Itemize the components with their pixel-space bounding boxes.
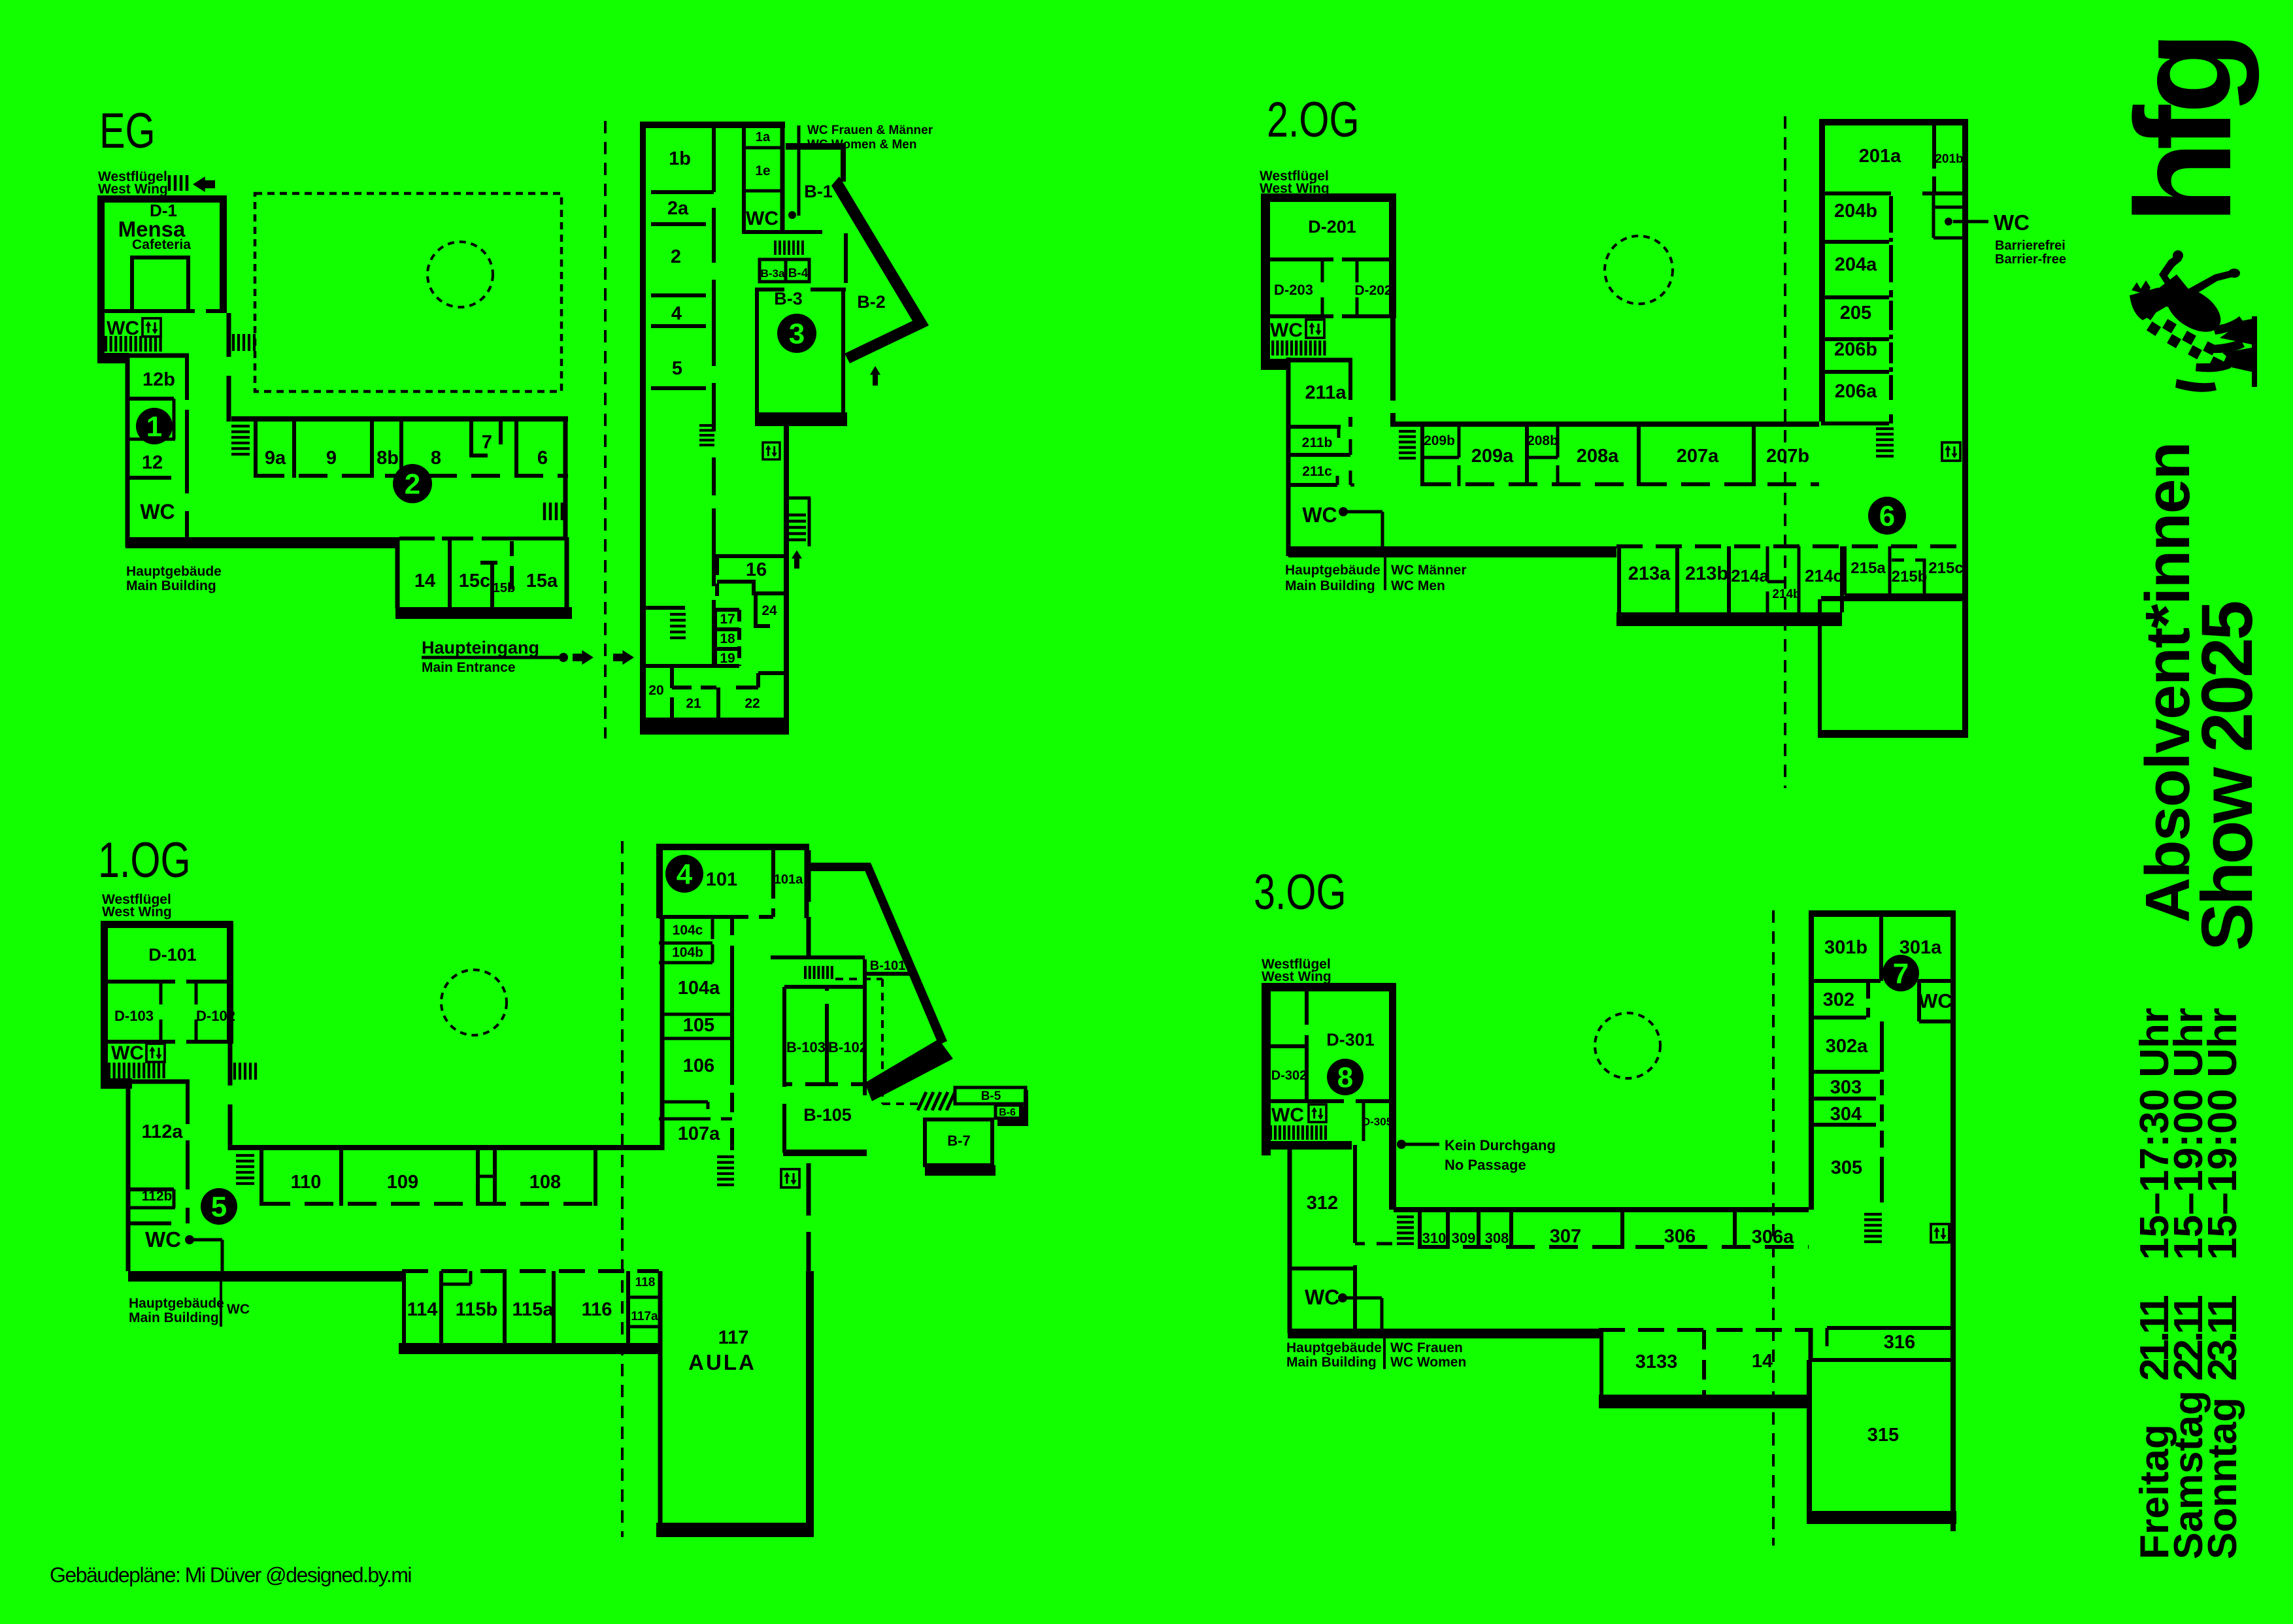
- svg-text:2: 2: [671, 246, 681, 267]
- svg-text:2.OG: 2.OG: [1267, 92, 1360, 148]
- svg-text:Haupteingang: Haupteingang: [422, 638, 539, 657]
- svg-text:308: 308: [1485, 1230, 1509, 1246]
- svg-text:209a: 209a: [1471, 446, 1514, 467]
- svg-text:2: 2: [405, 469, 420, 501]
- svg-text:WC: WC: [145, 1227, 181, 1251]
- svg-text:213b: 213b: [1685, 563, 1728, 584]
- svg-text:B-7: B-7: [947, 1133, 970, 1149]
- svg-text:8: 8: [1337, 1062, 1353, 1094]
- svg-text:WC: WC: [227, 1302, 250, 1317]
- svg-text:12: 12: [142, 452, 163, 473]
- svg-text:Cafeteria: Cafeteria: [132, 237, 191, 252]
- svg-text:302a: 302a: [1826, 1036, 1868, 1057]
- svg-text:WC Women: WC Women: [1390, 1355, 1466, 1370]
- svg-text:9: 9: [326, 448, 337, 469]
- svg-text:15–19:00 Uhr: 15–19:00 Uhr: [2200, 1008, 2245, 1260]
- svg-text:8b: 8b: [377, 448, 399, 469]
- svg-text:Barrier-free: Barrier-free: [1995, 252, 2066, 267]
- svg-text:24: 24: [762, 603, 777, 618]
- svg-text:21: 21: [686, 696, 701, 711]
- svg-text:206a: 206a: [1835, 381, 1877, 402]
- svg-text:1b: 1b: [669, 148, 691, 169]
- svg-text:WC: WC: [140, 500, 175, 523]
- svg-text:7: 7: [1893, 958, 1909, 990]
- svg-text:316: 316: [1884, 1332, 1915, 1353]
- svg-text:Hauptgebäude: Hauptgebäude: [126, 564, 222, 579]
- svg-text:307: 307: [1550, 1226, 1581, 1247]
- svg-text:WC: WC: [1302, 503, 1337, 527]
- svg-text:D-103: D-103: [114, 1008, 154, 1024]
- svg-text:207b: 207b: [1766, 446, 1809, 467]
- svg-text:301a: 301a: [1900, 937, 1942, 958]
- svg-text:D-102: D-102: [196, 1008, 235, 1024]
- svg-text:214b: 214b: [1772, 588, 1800, 601]
- svg-text:hfg: hfg: [2108, 40, 2260, 224]
- svg-text:B-103: B-103: [786, 1039, 826, 1055]
- svg-text:112a: 112a: [142, 1121, 184, 1142]
- svg-text:Main Building: Main Building: [129, 1310, 219, 1325]
- svg-text:15c: 15c: [459, 571, 490, 591]
- svg-text:117: 117: [718, 1327, 749, 1348]
- svg-text:8: 8: [431, 448, 441, 469]
- svg-text:303: 303: [1830, 1077, 1862, 1098]
- svg-text:Main Building: Main Building: [1285, 578, 1375, 593]
- svg-text:215c: 215c: [1928, 559, 1963, 577]
- svg-text:211a: 211a: [1305, 382, 1347, 403]
- svg-text:B-6: B-6: [999, 1107, 1016, 1118]
- svg-text:304: 304: [1830, 1104, 1862, 1125]
- svg-text:1a: 1a: [756, 130, 771, 144]
- svg-text:D-305: D-305: [1362, 1116, 1392, 1128]
- svg-text:4: 4: [677, 859, 693, 891]
- svg-text:209b: 209b: [1424, 433, 1455, 448]
- svg-text:17: 17: [720, 612, 735, 627]
- svg-text:204a: 204a: [1835, 254, 1877, 275]
- svg-text:6: 6: [537, 448, 548, 469]
- svg-text:305: 305: [1831, 1157, 1862, 1178]
- svg-text:AULA: AULA: [688, 1350, 756, 1374]
- svg-text:D-101: D-101: [148, 945, 197, 965]
- svg-text:D-203: D-203: [1274, 282, 1313, 298]
- svg-text:1e: 1e: [755, 163, 770, 178]
- svg-text:3133: 3133: [1635, 1351, 1678, 1372]
- svg-text:19: 19: [720, 651, 735, 666]
- svg-text:D-301: D-301: [1326, 1030, 1375, 1050]
- svg-text:No Passage: No Passage: [1445, 1157, 1526, 1173]
- svg-text:WC: WC: [1271, 1104, 1304, 1126]
- svg-text:Gebäudepläne: Mi Düver @design: Gebäudepläne: Mi Düver @designed.by.mi: [50, 1563, 411, 1587]
- svg-text:312: 312: [1307, 1193, 1338, 1214]
- svg-text:West Wing: West Wing: [1262, 969, 1331, 984]
- svg-text:4: 4: [671, 303, 682, 324]
- svg-text:215b: 215b: [1892, 568, 1928, 586]
- svg-text:208a: 208a: [1577, 446, 1619, 467]
- svg-text:115b: 115b: [456, 1299, 498, 1320]
- svg-text:306: 306: [1664, 1226, 1696, 1247]
- svg-text:22: 22: [745, 696, 760, 711]
- svg-text:D-201: D-201: [1308, 217, 1356, 237]
- svg-text:101: 101: [706, 869, 737, 890]
- svg-text:201a: 201a: [1859, 146, 1901, 167]
- svg-text:B-102: B-102: [828, 1039, 867, 1055]
- svg-text:214a: 214a: [1731, 566, 1769, 586]
- svg-text:118: 118: [635, 1276, 656, 1289]
- svg-text:309: 309: [1452, 1230, 1476, 1246]
- svg-text:Main Building: Main Building: [126, 578, 216, 593]
- svg-text:5: 5: [211, 1191, 227, 1223]
- svg-text:115a: 115a: [512, 1299, 554, 1320]
- svg-text:1.OG: 1.OG: [98, 833, 191, 888]
- svg-text:Sonntag: Sonntag: [2200, 1397, 2245, 1559]
- svg-text:Barrierefrei: Barrierefrei: [1995, 239, 2066, 253]
- svg-text:204b: 204b: [1834, 201, 1877, 222]
- svg-text:107a: 107a: [678, 1123, 720, 1144]
- svg-text:215a: 215a: [1850, 559, 1886, 577]
- svg-text:315: 315: [1867, 1425, 1899, 1446]
- svg-text:WC: WC: [1305, 1285, 1339, 1309]
- svg-text:114: 114: [407, 1299, 438, 1320]
- svg-text:WC: WC: [746, 208, 778, 229]
- svg-text:Hauptgebäude: Hauptgebäude: [129, 1296, 224, 1311]
- svg-text:WC: WC: [1918, 989, 1952, 1012]
- svg-text:109: 109: [387, 1172, 418, 1193]
- svg-text:B-3: B-3: [774, 289, 803, 308]
- svg-text:5: 5: [672, 358, 682, 379]
- svg-text:15a: 15a: [526, 571, 558, 591]
- svg-text:20: 20: [648, 683, 663, 698]
- svg-text:West Wing: West Wing: [102, 904, 172, 920]
- svg-text:104b: 104b: [672, 945, 703, 960]
- svg-text:Hauptgebäude: Hauptgebäude: [1285, 563, 1381, 578]
- svg-text:116: 116: [582, 1299, 612, 1320]
- svg-text:3.OG: 3.OG: [1254, 865, 1347, 920]
- svg-text:101a: 101a: [774, 872, 803, 887]
- svg-text:3: 3: [789, 318, 805, 350]
- svg-text:15b: 15b: [493, 581, 515, 595]
- svg-text:Kein Durchgang: Kein Durchgang: [1445, 1137, 1556, 1153]
- svg-text:117a: 117a: [631, 1310, 658, 1323]
- svg-text:B-101: B-101: [870, 959, 905, 973]
- svg-text:106: 106: [683, 1055, 714, 1076]
- svg-text:B-5: B-5: [981, 1089, 1001, 1103]
- svg-text:WC: WC: [1994, 210, 2030, 235]
- svg-text:Hauptgebäude: Hauptgebäude: [1286, 1340, 1382, 1355]
- svg-text:7: 7: [482, 432, 492, 453]
- svg-text:WC Männer: WC Männer: [1391, 563, 1467, 578]
- svg-text:104c: 104c: [673, 923, 703, 938]
- svg-text:B-3a: B-3a: [761, 267, 785, 280]
- svg-text:B-105: B-105: [803, 1105, 852, 1125]
- svg-text:B-1: B-1: [804, 182, 833, 201]
- svg-text:14: 14: [414, 571, 435, 591]
- svg-text:2a: 2a: [667, 198, 689, 219]
- svg-text:D-202: D-202: [1354, 283, 1392, 298]
- svg-text:302: 302: [1823, 989, 1854, 1010]
- svg-text:18: 18: [720, 631, 735, 646]
- svg-text:104a: 104a: [678, 978, 720, 999]
- svg-text:310: 310: [1422, 1230, 1447, 1246]
- svg-text:WC Men: WC Men: [1391, 578, 1445, 593]
- svg-text:206b: 206b: [1834, 339, 1877, 360]
- svg-text:207a: 207a: [1677, 446, 1719, 467]
- svg-text:EG: EG: [99, 103, 156, 159]
- svg-text:Show 2025: Show 2025: [2187, 602, 2268, 951]
- svg-text:211c: 211c: [1302, 464, 1332, 479]
- svg-text:Main Building: Main Building: [1286, 1355, 1377, 1370]
- svg-text:WC Frauen & Männer: WC Frauen & Männer: [807, 124, 933, 137]
- svg-text:WC Frauen: WC Frauen: [1390, 1340, 1463, 1355]
- svg-text:301b: 301b: [1824, 937, 1867, 958]
- svg-text:Main Entrance: Main Entrance: [422, 660, 516, 675]
- svg-text:214c: 214c: [1805, 566, 1843, 586]
- svg-text:WC: WC: [1270, 320, 1303, 341]
- svg-text:23.11: 23.11: [2200, 1296, 2245, 1381]
- svg-text:110: 110: [291, 1172, 322, 1193]
- svg-text:211b: 211b: [1302, 435, 1333, 450]
- svg-text:213a: 213a: [1628, 563, 1671, 584]
- svg-text:208b: 208b: [1527, 433, 1558, 448]
- svg-text:6: 6: [1879, 501, 1895, 533]
- svg-text:14: 14: [1752, 1351, 1773, 1372]
- svg-text:West Wing: West Wing: [98, 182, 168, 197]
- svg-text:D-302: D-302: [1271, 1069, 1307, 1083]
- svg-text:108: 108: [529, 1172, 561, 1193]
- svg-text:201b: 201b: [1935, 152, 1963, 166]
- svg-text:WC: WC: [111, 1042, 144, 1064]
- svg-text:B-4: B-4: [788, 267, 809, 280]
- svg-text:12b: 12b: [142, 369, 175, 390]
- svg-text:B-2: B-2: [857, 292, 886, 312]
- svg-text:105: 105: [683, 1015, 714, 1036]
- svg-text:9a: 9a: [265, 448, 286, 469]
- svg-text:205: 205: [1840, 303, 1871, 323]
- svg-text:16: 16: [746, 559, 767, 580]
- svg-text:112b: 112b: [142, 1189, 173, 1204]
